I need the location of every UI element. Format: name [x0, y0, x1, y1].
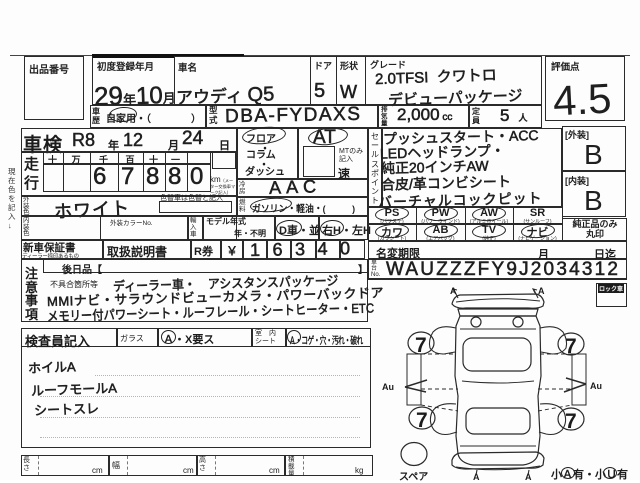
svg-text:7: 7	[565, 335, 577, 358]
svg-text:A: A	[450, 286, 457, 296]
svg-text:Au: Au	[590, 381, 602, 391]
svg-text:Au: Au	[382, 382, 394, 392]
svg-text:7: 7	[416, 409, 428, 432]
svg-text:A: A	[538, 286, 545, 296]
svg-text:7: 7	[565, 410, 577, 433]
